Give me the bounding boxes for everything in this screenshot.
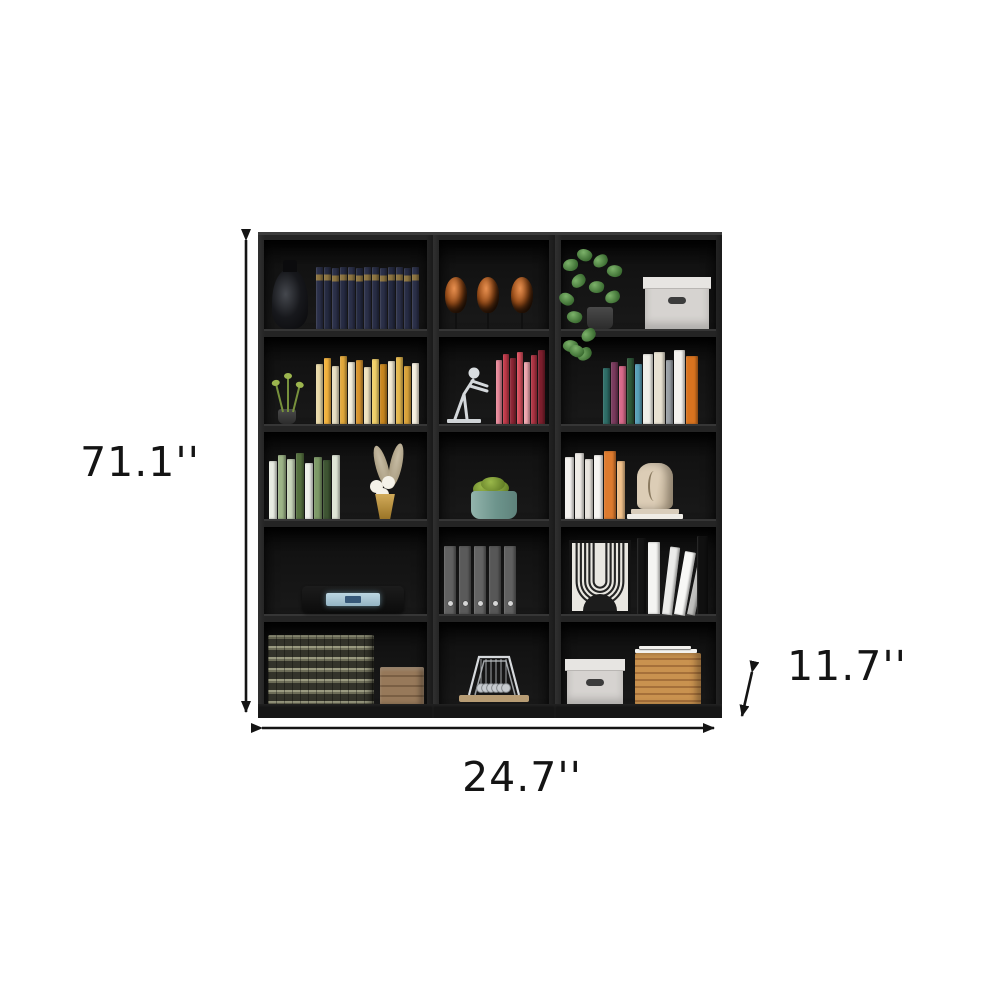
book-spine [643,354,653,424]
book-spine [396,267,403,329]
binder-row [444,546,516,614]
book-spine [324,267,331,329]
plant-stem [287,376,289,412]
pothos-leaf [588,280,605,294]
cubby-r1c2 [439,240,549,331]
cubby-r2c2 [439,337,549,426]
book-spine [364,267,371,329]
copper-mask [477,277,499,313]
book-spine [278,455,286,519]
stacked-book [627,514,683,519]
book-spine [332,268,339,329]
binder-ring-hole [463,601,468,606]
book-spine [316,267,323,329]
book-spine [619,366,626,424]
book-spine [686,356,698,424]
pothos-leaf [569,272,588,290]
height-dimension-label: 71.1'' [55,438,225,486]
book-spine [585,459,593,519]
arch-line-art [572,543,628,611]
arch-line-art-frame [569,540,631,614]
pothos-leaf [591,253,609,269]
binder-ring-hole [493,601,498,606]
pothos-leaf [563,259,578,271]
box-handle-hole [586,679,604,686]
cubby-r3c1 [264,432,427,521]
product-dimension-diagram: 71.1'' 24.7'' 11.7'' [0,0,1000,1000]
encyclopedia-row [316,267,419,329]
book-spine [666,360,673,424]
book-spine [603,368,610,424]
book-spine [404,366,411,424]
book-spine [604,451,616,519]
cubby-r4c1 [264,527,427,616]
book-spine [372,267,379,329]
book-spine [412,267,419,329]
stereo-unit [302,586,404,612]
book-spine [538,350,545,424]
black-white-book-row [637,536,708,614]
copper-mask [511,277,533,313]
face-sculpture [637,463,673,509]
cubby-r5c1 [264,622,427,707]
yellow-book-row [316,356,419,424]
book-spine [348,267,355,329]
book-spine [565,457,574,519]
book-spine [489,546,501,614]
depth-dimension-label: 11.7'' [762,642,932,690]
book-spine [412,363,419,424]
book-spine [388,267,395,329]
book-spine [380,268,387,329]
pothos-leaf [557,290,576,309]
copper-mask [445,277,467,313]
book-spine [356,360,363,424]
book-spine [340,356,347,424]
bookcase-unit-right [555,232,722,718]
book-spine [594,455,603,519]
red-book-row [496,350,545,424]
book-spine [332,455,340,519]
book-spine [617,461,625,519]
book-spine [517,352,523,424]
book-spine [627,358,634,424]
book-spine [380,364,387,424]
book-spine [348,362,355,424]
bookcase-unit-middle [433,232,555,718]
figure-bookend [445,358,489,424]
bookcase-unit-left [258,232,433,718]
multicolor-book-row [603,350,698,424]
cubby-r1c1 [264,240,427,331]
width-dimension-label: 24.7'' [437,753,607,801]
book-spine [496,360,502,424]
book-spine [635,364,642,424]
white-flower [382,476,395,489]
book-spine [654,352,665,424]
book-spine [372,359,379,424]
book-spine [314,457,322,519]
depth-dimension-line [742,672,752,716]
cubby-r1c3 [561,240,716,331]
book-spine [503,354,509,424]
encyclopedia-stack [268,635,374,705]
book-spine [510,358,516,424]
box-lid [565,659,625,671]
book-spine [474,546,486,614]
wooden-crate [380,667,424,705]
plant-stem [275,383,284,413]
pothos-leaf [606,263,624,278]
cubby-r4c3 [561,527,716,616]
book-spine [404,268,411,329]
succulent [481,477,505,491]
box-handle-hole [668,297,686,304]
book-spine [296,453,304,519]
papers [639,646,691,649]
plant-stem [292,385,301,413]
pothos-leaf [604,290,621,305]
glass-decanter [272,269,308,329]
cubby-r3c3 [561,432,716,521]
book-spine [316,364,323,424]
box-lid [643,277,711,289]
green-book-row [269,453,340,519]
book-spine [504,546,516,614]
book-spine [637,538,646,614]
book-spine [444,546,456,614]
white-storage-box-small [567,659,623,705]
white-storage-box [645,277,709,329]
cubby-r3c2 [439,432,549,521]
book-spine [323,460,331,519]
book-spine [287,459,295,519]
binder-ring-hole [478,601,483,606]
book-spine [396,357,403,424]
white-orange-book-row [565,451,625,519]
book-spine [364,367,371,424]
book-spine [324,358,331,424]
cubby-r2c1 [264,337,427,426]
stereo-display [326,593,380,606]
book-spine [524,362,530,424]
book-spine [674,350,685,424]
book-spine [356,268,363,329]
cubby-r5c2 [439,622,549,707]
cubby-r5c3 [561,622,716,707]
book-spine [340,267,347,329]
gold-vase [372,494,398,519]
book-spine [305,463,313,519]
book-spine [332,366,339,424]
book-spine [531,355,537,424]
cubby-r4c2 [439,527,549,616]
rattan-box [635,653,701,705]
newtons-cradle [455,651,533,703]
book-spine [459,546,471,614]
pothos-leaf [565,309,583,326]
book-spine [697,536,708,614]
book-spine [388,361,395,424]
book-spine [648,542,660,614]
binder-ring-hole [508,601,513,606]
book-spine [269,461,277,519]
book-spine [611,362,618,424]
teal-planter [471,491,517,519]
stacked-book [631,509,679,514]
pothos-pot [587,307,613,329]
book-spine [575,453,584,519]
binder-ring-hole [448,601,453,606]
